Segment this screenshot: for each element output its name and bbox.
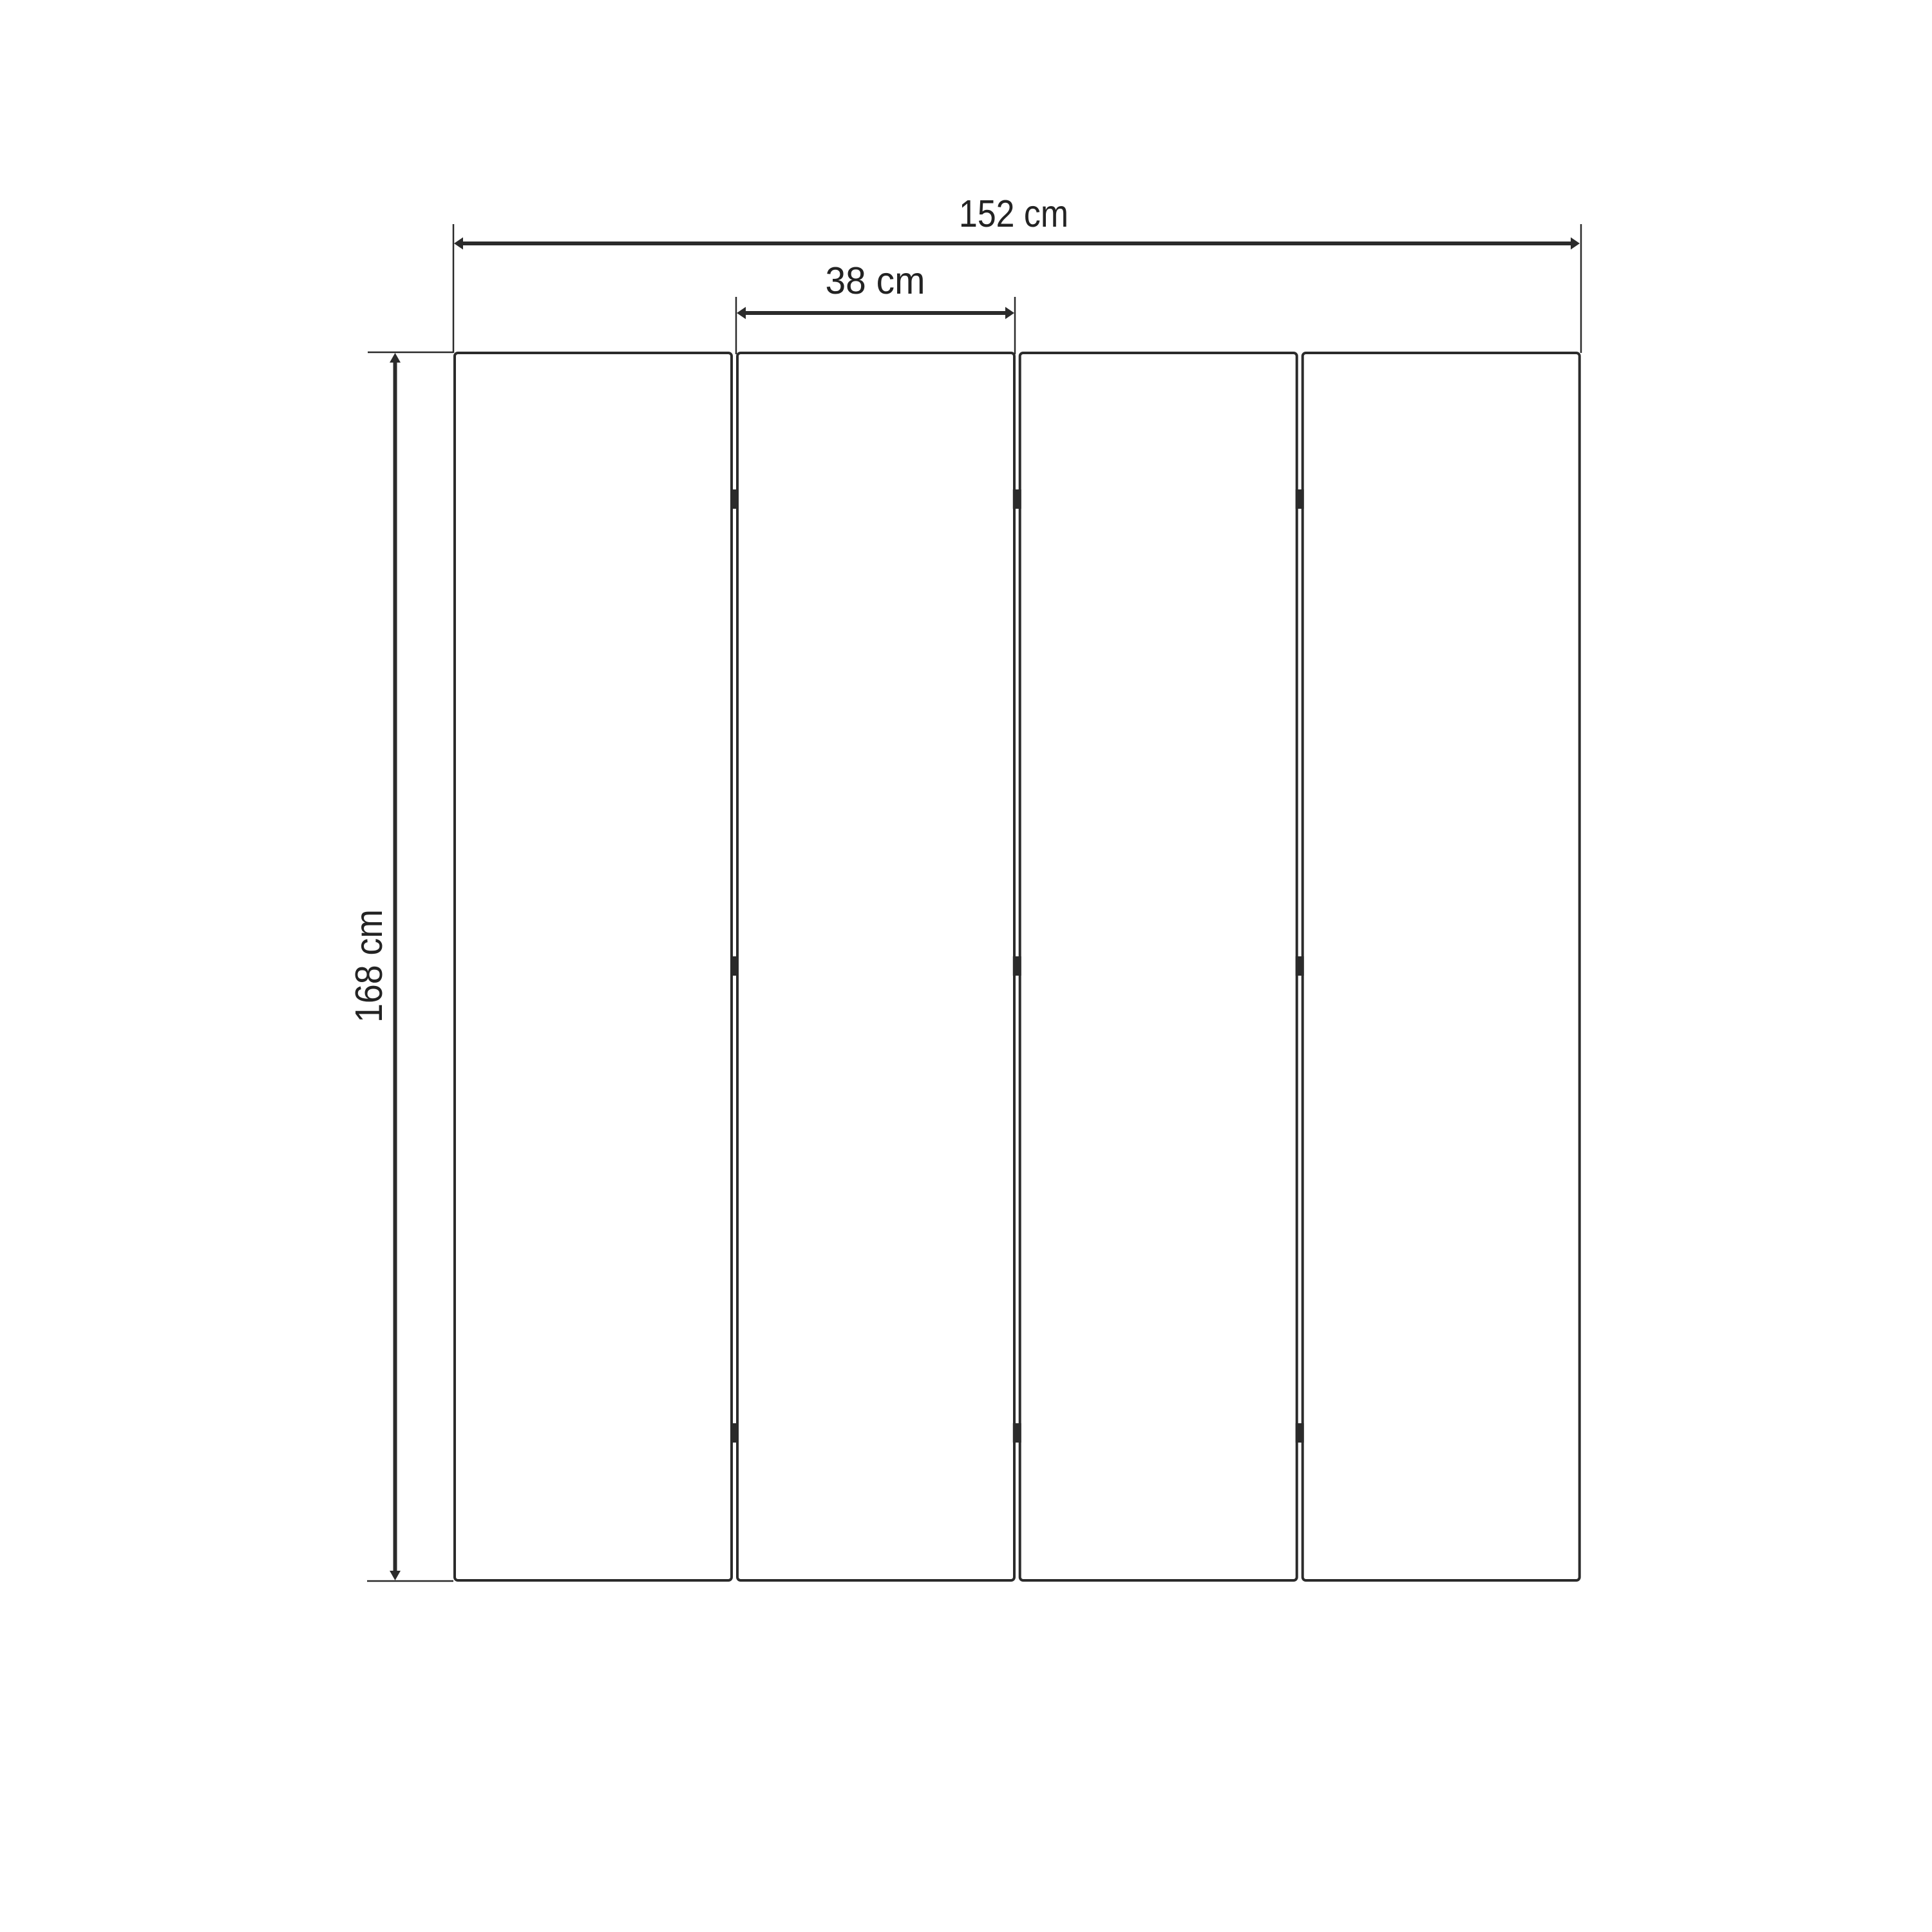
svg-text:152 cm: 152 cm [959,193,1068,235]
svg-text:38 cm: 38 cm [826,260,925,302]
svg-text:168 cm: 168 cm [348,909,390,1023]
